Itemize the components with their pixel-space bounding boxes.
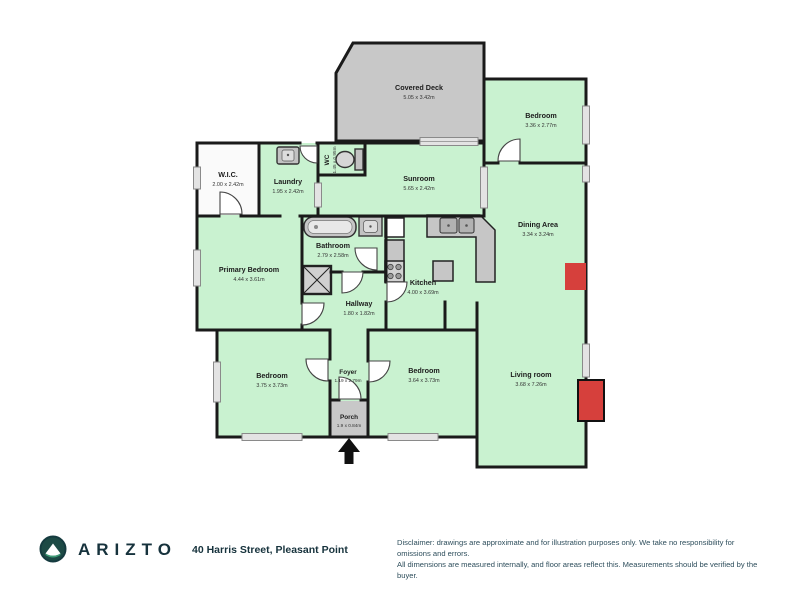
room-title: Bathroom	[316, 241, 350, 250]
room-title: W.I.C.	[218, 170, 238, 179]
brand-name: ARIZTO	[78, 540, 177, 560]
room-title: Covered Deck	[395, 83, 443, 92]
room-title: WC	[324, 154, 331, 165]
property-address: 40 Harris Street, Pleasant Point	[192, 544, 348, 556]
room-dims: 4.44 x 3.61m	[233, 277, 265, 283]
room-dims: 1.9 x 0.84m	[337, 423, 362, 428]
window	[583, 344, 590, 377]
window	[481, 167, 488, 208]
room-dims: 2.00 x 2.42m	[212, 182, 244, 188]
window	[388, 434, 438, 441]
room-title: Kitchen	[410, 278, 436, 287]
arizto-logo-icon	[39, 535, 67, 563]
room-dims: 3.68 x 7.26m	[515, 382, 547, 388]
disclaimer-text: Disclaimer: drawings are approximate and…	[397, 537, 759, 581]
fridge-icon	[385, 218, 404, 237]
window	[315, 183, 322, 207]
fireplace-living	[578, 380, 604, 421]
room-title: Foyer	[339, 369, 357, 376]
toilet-icon	[336, 149, 363, 170]
room-dims: 1.19 x 2.79m	[334, 378, 361, 383]
bathroom-sink-icon	[359, 217, 382, 236]
room-dims: 3.75 x 3.73m	[256, 383, 288, 389]
bathtub-icon	[304, 217, 356, 237]
window	[194, 250, 201, 286]
floorplan-drawing: Covered Deck 5.05 x 3.42m Bedroom 3.36 x…	[0, 0, 800, 510]
fireplace-dining	[565, 263, 586, 290]
shower-icon	[303, 266, 331, 294]
room-title: Sunroom	[403, 174, 435, 183]
room-title: Bedroom	[525, 111, 557, 120]
room-title: Primary Bedroom	[219, 265, 279, 274]
room-dims: 1.45 x 0.95m	[332, 146, 337, 173]
room-dims: 1.80 x 1.82m	[343, 311, 375, 317]
window	[214, 362, 221, 402]
window	[583, 166, 590, 182]
room-dims: 3.34 x 3.24m	[522, 232, 554, 238]
room-dims: 3.64 x 3.73m	[408, 378, 440, 384]
laundry-sink-icon	[277, 147, 299, 164]
room-dims: 5.65 x 2.42m	[403, 186, 435, 192]
room-title: Bedroom	[408, 366, 440, 375]
room-title: Dining Area	[518, 220, 559, 229]
disclaimer-line-2: All dimensions are measured internally, …	[397, 559, 759, 581]
room-dims: 5.05 x 3.42m	[403, 95, 435, 101]
room-title: Living room	[510, 370, 551, 379]
window	[583, 106, 590, 144]
covered-deck-area	[336, 43, 484, 141]
room-dims: 2.79 x 2.58m	[317, 253, 349, 259]
entrance-arrow-icon	[338, 438, 360, 464]
room-dims: 4.00 x 3.69m	[407, 290, 439, 296]
floorplan-page: Covered Deck 5.05 x 3.42m Bedroom 3.36 x…	[0, 0, 800, 600]
disclaimer-line-1: Disclaimer: drawings are approximate and…	[397, 537, 759, 559]
stove-counter-icon	[385, 240, 404, 282]
room-title: Bedroom	[256, 371, 288, 380]
room-title: Hallway	[346, 299, 373, 308]
room-dims: 1.95 x 2.42m	[272, 189, 304, 195]
room-title: Porch	[340, 414, 358, 421]
room-dims: 3.36 x 2.77m	[525, 123, 557, 129]
footer: ARIZTO 40 Harris Street, Pleasant Point …	[0, 528, 800, 578]
window	[194, 167, 201, 189]
room-title: Laundry	[274, 177, 302, 186]
window	[242, 434, 302, 441]
